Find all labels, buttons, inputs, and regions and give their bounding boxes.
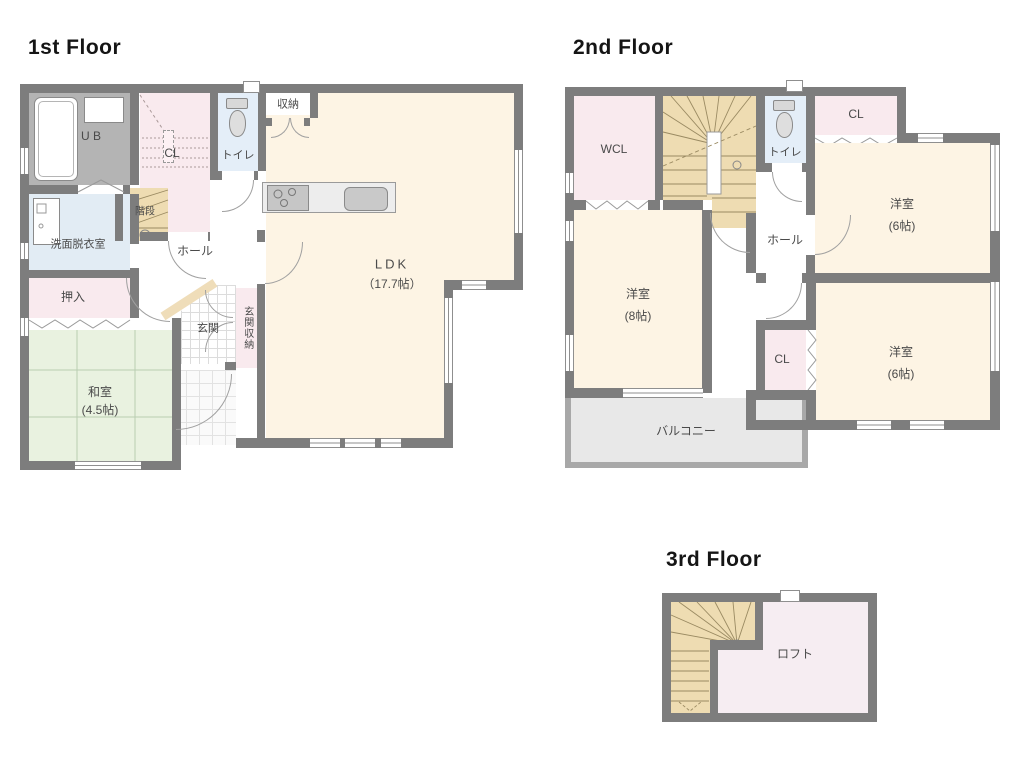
second-floor-plan: WCL トイレ CL 洋室 (6帖) ホール 洋室 (8帖) CL 洋室 (6帖… [565,83,1000,465]
window-tab [786,80,803,92]
wall [710,640,718,713]
label-hall: ホール [767,234,803,248]
door-opening [806,215,815,255]
window [565,335,574,371]
floorplan-canvas: 1st Floor 2nd Floor 3rd Floor [0,0,1024,768]
door-arc [766,283,802,319]
window [444,298,453,383]
door-opening [130,244,139,268]
wall [756,96,765,172]
window [990,145,1000,231]
window [345,438,375,448]
wall [806,283,816,330]
wall [258,93,266,171]
wall [868,593,877,722]
wall [746,390,756,430]
label-storage: 収納 [277,99,299,112]
label-cl-top: CL [848,108,863,122]
wall [897,133,1000,143]
window [918,133,943,143]
window [20,148,29,174]
window [381,438,401,448]
door-opening [222,171,254,180]
wall [130,93,139,185]
wall [257,230,265,242]
label-bedroom-west: 洋室 [626,288,650,302]
wall [565,87,906,96]
wall [756,330,765,393]
label-genkan-storage: 玄関収納 [241,306,253,350]
window [75,461,141,470]
first-floor-title: 1st Floor [28,36,121,60]
window [310,438,340,448]
window [990,282,1000,371]
label-ldk: LDK [375,258,409,273]
window [20,318,29,336]
window [565,173,574,193]
label-bedroom-ne: 洋室 [890,198,914,212]
wall [173,362,181,370]
door-opening [766,273,802,283]
label-genkan: 玄関 [197,323,219,336]
wall [662,713,877,722]
label-ldk-size: （17.7帖） [362,278,421,292]
wall [806,87,815,215]
label-washroom: 洗面脱衣室 [51,239,106,252]
window-tab [780,590,800,602]
wall [20,84,523,93]
bath-counter-icon [84,97,124,123]
wall [310,93,318,118]
wall [663,200,703,210]
second-floor-title: 2nd Floor [573,36,673,60]
label-oshiire: 押入 [61,291,85,305]
label-balcony: バルコニー [656,425,716,439]
window [565,221,574,241]
wall [29,270,130,278]
bathtub-icon [34,97,78,181]
toilet-tank-icon [226,98,248,109]
folding-door-icon [806,330,818,390]
first-floor-plan: U B CL 階段 トイレ 収納 ホール 洗面脱衣室 押入 和室 (4.5帖) … [20,84,523,470]
toilet-tank-icon [773,100,795,111]
wall [662,593,877,602]
window [910,420,944,430]
wall [702,210,712,393]
door-arc [710,213,750,253]
window-tab [243,81,260,93]
stove-burners-icon [267,185,309,211]
label-hall: ホール [177,245,213,259]
wall [662,593,671,722]
door-opening [168,232,208,241]
label-stairs: 階段 [135,206,155,218]
label-toilet: トイレ [769,147,802,160]
door-arc [772,172,802,202]
label-bedroom-se: 洋室 [889,346,913,360]
wall [806,255,815,273]
label-washitsu-size: (4.5帖) [82,404,119,418]
folding-door-icon [29,318,130,330]
label-washitsu: 和室 [88,386,112,400]
toilet-bowl-icon [776,112,793,138]
window [462,280,486,290]
wall [20,84,29,470]
label-bedroom-west-size: (8帖) [625,310,652,324]
wall [210,93,218,180]
window [20,243,29,259]
window [514,150,523,233]
label-ub: U B [81,130,101,144]
label-bedroom-ne-size: (6帖) [889,220,916,234]
wall [655,96,663,200]
toilet-bowl-icon [229,110,246,137]
door-arc [222,180,254,212]
label-wcl: WCL [601,143,628,157]
label-toilet: トイレ [222,150,255,163]
third-floor-plan: ロフト [662,593,877,722]
window [857,420,891,430]
label-cl: CL [164,147,179,161]
wall [257,284,265,448]
third-floor-title: 3rd Floor [666,548,762,572]
label-cl-mid: CL [774,353,789,367]
sink-icon [344,187,388,211]
wall [806,390,816,430]
window [623,388,703,398]
folding-door-icon [586,198,648,212]
door-opening [772,163,802,172]
bath-door-icon [76,176,126,194]
label-loft: ロフト [777,648,813,662]
wall [225,362,236,370]
label-bedroom-se-size: (6帖) [888,368,915,382]
